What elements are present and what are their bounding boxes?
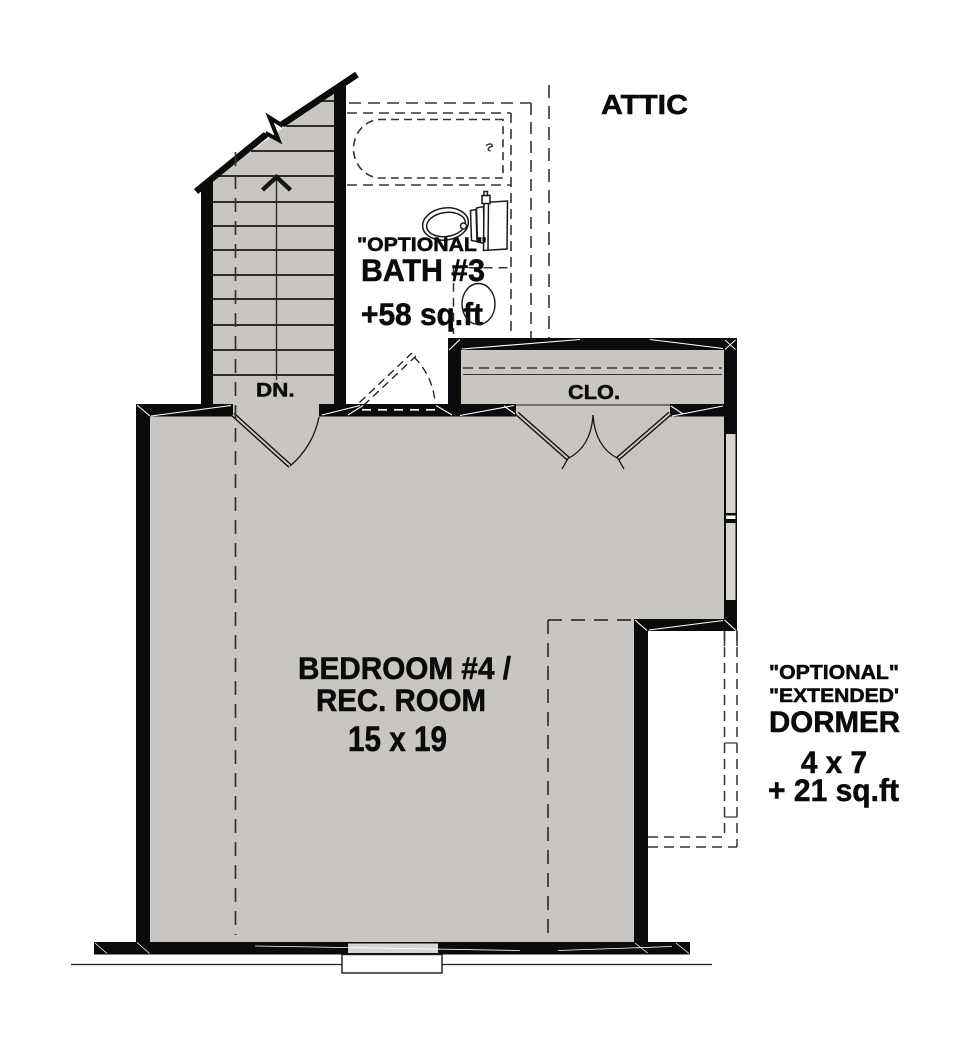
svg-text:"EXTENDED': "EXTENDED' [769,685,899,707]
svg-text:ATTIC: ATTIC [601,89,688,120]
svg-text:CLO.: CLO. [568,381,620,404]
svg-text:+58 sq.ft: +58 sq.ft [361,296,483,332]
svg-text:15 x 19: 15 x 19 [348,720,447,759]
svg-text:REC. ROOM: REC. ROOM [316,682,486,718]
svg-text:DORMER: DORMER [769,706,900,739]
svg-text:+ 21 sq.ft: + 21 sq.ft [768,772,899,808]
svg-text:"OPTIONAL": "OPTIONAL" [769,661,899,684]
svg-text:BEDROOM #4 /: BEDROOM #4 / [298,650,511,686]
svg-text:DN.: DN. [256,380,295,402]
svg-text:BATH #3: BATH #3 [361,252,485,288]
